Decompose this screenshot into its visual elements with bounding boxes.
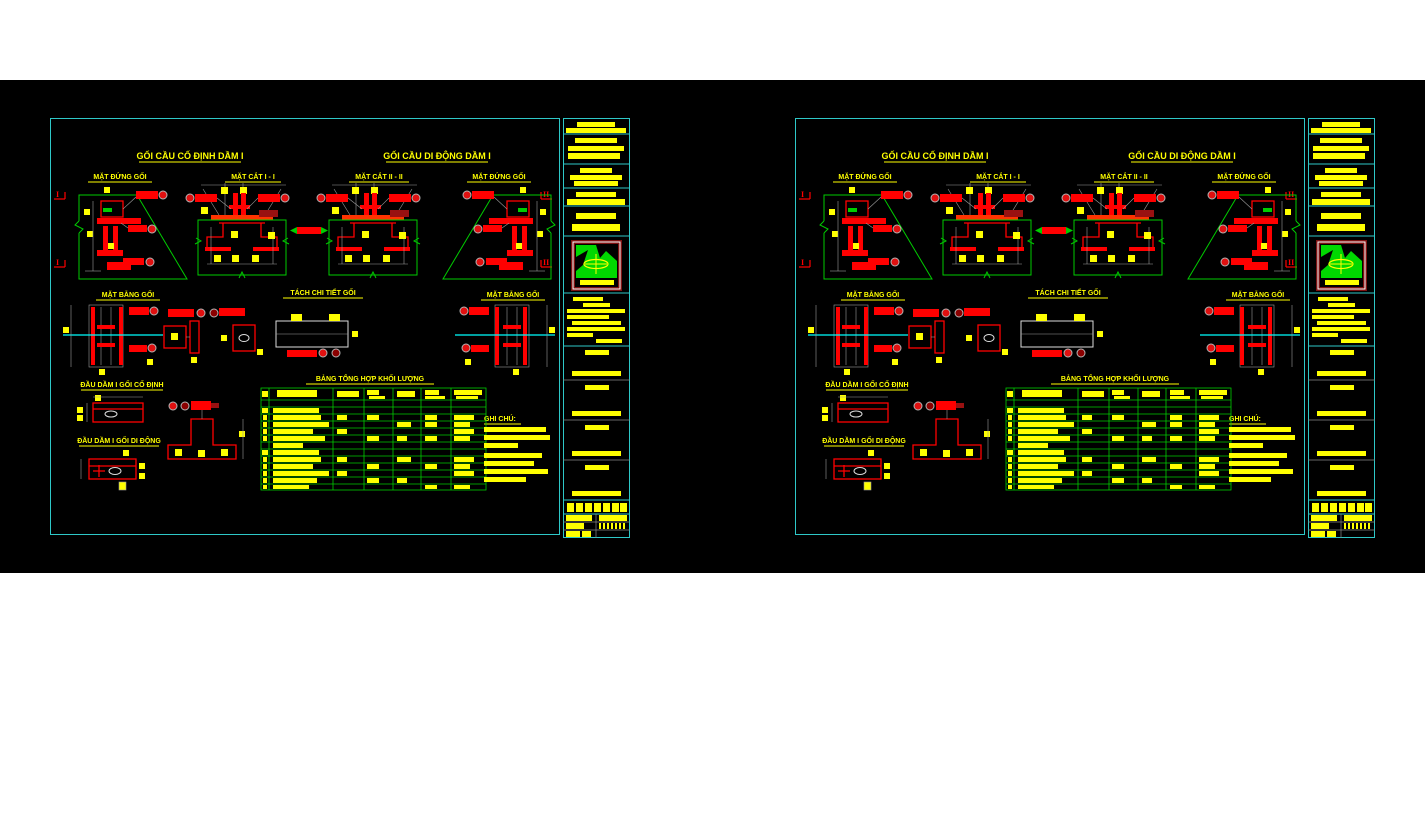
- company-logo: [571, 240, 622, 291]
- sheet-border: GỐI CẦU CỐ ĐỊNH DẦM I GỐI CẦU DI ĐỘNG DẦ…: [50, 118, 560, 535]
- label-detail: TÁCH CHI TIẾT GỐI: [1035, 287, 1100, 297]
- bearing-plate-profile: [913, 401, 990, 459]
- beam-end-fixed-view: [822, 395, 888, 422]
- elevation-view-fixed: [820, 187, 932, 279]
- bearing-plate-profile: [168, 401, 245, 459]
- label-beam-end-movable: ĐẦU DẦM I GỐI DI ĐỘNG: [77, 435, 161, 445]
- section-mark: I: [799, 190, 810, 199]
- section-mark: I: [799, 258, 810, 267]
- beam-end-fixed-view: [77, 395, 143, 422]
- notes-lines: [1229, 427, 1295, 482]
- label-plan-left: MẶT BẰNG GỐI: [847, 289, 900, 299]
- label-section-2: MẶT CẮT II - II: [1100, 172, 1147, 181]
- titleblock-bottom-table: [566, 515, 627, 537]
- sheet-border: GỐI CẦU CỐ ĐỊNH DẦM I GỐI CẦU DI ĐỘNG DẦ…: [795, 118, 1305, 535]
- titleblock-address-rows: [567, 297, 625, 343]
- quantity-table: [261, 388, 486, 490]
- drawing-sheet-1: GỐI CẦU CỐ ĐỊNH DẦM I GỐI CẦU DI ĐỘNG DẦ…: [50, 118, 631, 539]
- label-notes: GHI CHÚ:: [1229, 414, 1261, 423]
- label-beam-end-fixed: ĐẦU DẦM I GỐI CỐ ĐỊNH: [80, 379, 163, 389]
- connector-bar: [290, 227, 328, 234]
- elevation-view-fixed: [75, 187, 187, 279]
- svg-text:I: I: [56, 258, 59, 267]
- elevation-view-movable: [443, 187, 555, 279]
- label-quantity-table: BẢNG TỔNG HỢP KHỐI LƯỢNG: [1061, 373, 1170, 383]
- section-view-1: [931, 183, 1034, 278]
- beam-end-movable-view: [81, 450, 145, 490]
- label-notes: GHI CHÚ:: [484, 414, 516, 423]
- label-elevation-left: MẶT ĐỨNG GỐI: [838, 171, 891, 181]
- label-plan-left: MẶT BẰNG GỐI: [102, 289, 155, 299]
- label-section-1: MẶT CẮT I - I: [231, 172, 275, 181]
- plan-view-fixed: [63, 305, 163, 375]
- label-plan-right: MẶT BẰNG GỐI: [1232, 289, 1285, 299]
- drawing-sheet-2: GỐI CẦU CỐ ĐỊNH DẦM I GỐI CẦU DI ĐỘNG DẦ…: [795, 118, 1376, 539]
- signature-boxes: [1317, 350, 1366, 496]
- sheet-drawing: GỐI CẦU CỐ ĐỊNH DẦM I GỐI CẦU DI ĐỘNG DẦ…: [51, 119, 559, 534]
- plan-view-movable: [455, 305, 555, 375]
- plan-view-movable: [1200, 305, 1300, 375]
- titleblock-text-rows: [566, 122, 626, 231]
- titleblock-text-rows: [1311, 122, 1371, 231]
- title-block: [563, 118, 630, 538]
- label-beam-end-movable: ĐẦU DẦM I GỐI DI ĐỘNG: [822, 435, 906, 445]
- svg-text:I: I: [56, 190, 59, 199]
- connector-bar: [1035, 227, 1073, 234]
- section-view-2: [317, 183, 420, 278]
- label-elevation-right: MẶT ĐỨNG GỐI: [1217, 171, 1270, 181]
- company-logo: [1316, 240, 1367, 291]
- detail-views: [909, 308, 1103, 363]
- label-section-1: MẶT CẮT I - I: [976, 172, 1020, 181]
- svg-text:I: I: [801, 190, 804, 199]
- section-mark: II: [1286, 258, 1297, 267]
- svg-text:II: II: [1288, 258, 1294, 267]
- titleblock-squares-row: [1312, 503, 1372, 512]
- svg-text:I: I: [801, 258, 804, 267]
- elevation-view-movable: [1188, 187, 1300, 279]
- label-elevation-right: MẶT ĐỨNG GỐI: [472, 171, 525, 181]
- titleblock-address-rows: [1312, 297, 1370, 343]
- title-fixed-bearing: GỐI CẦU CỐ ĐỊNH DẦM I: [137, 150, 244, 161]
- section-mark: I: [54, 258, 65, 267]
- sheet-drawing: GỐI CẦU CỐ ĐỊNH DẦM I GỐI CẦU DI ĐỘNG DẦ…: [796, 119, 1304, 534]
- label-elevation-left: MẶT ĐỨNG GỐI: [93, 171, 146, 181]
- label-quantity-table: BẢNG TỔNG HỢP KHỐI LƯỢNG: [316, 373, 425, 383]
- titleblock-squares-row: [567, 503, 627, 512]
- quantity-table: [1006, 388, 1231, 490]
- titleblock-bottom-table: [1311, 515, 1372, 537]
- section-mark: II: [541, 258, 552, 267]
- title-movable-bearing: GỐI CẦU DI ĐỘNG DẦM I: [383, 150, 491, 161]
- section-mark: I: [54, 190, 65, 199]
- label-plan-right: MẶT BẰNG GỐI: [487, 289, 540, 299]
- title-block: [1308, 118, 1375, 538]
- label-beam-end-fixed: ĐẦU DẦM I GỐI CỐ ĐỊNH: [825, 379, 908, 389]
- label-detail: TÁCH CHI TIẾT GỐI: [290, 287, 355, 297]
- title-fixed-bearing: GỐI CẦU CỐ ĐỊNH DẦM I: [882, 150, 989, 161]
- beam-end-movable-view: [826, 450, 890, 490]
- detail-views: [164, 308, 358, 363]
- section-view-1: [186, 183, 289, 278]
- signature-boxes: [572, 350, 621, 496]
- title-movable-bearing: GỐI CẦU DI ĐỘNG DẦM I: [1128, 150, 1236, 161]
- plan-view-fixed: [808, 305, 908, 375]
- page: GỐI CẦU CỐ ĐỊNH DẦM I GỐI CẦU DI ĐỘNG DẦ…: [0, 0, 1425, 840]
- svg-text:II: II: [543, 258, 549, 267]
- notes-lines: [484, 427, 550, 482]
- section-view-2: [1062, 183, 1165, 278]
- label-section-2: MẶT CẮT II - II: [355, 172, 402, 181]
